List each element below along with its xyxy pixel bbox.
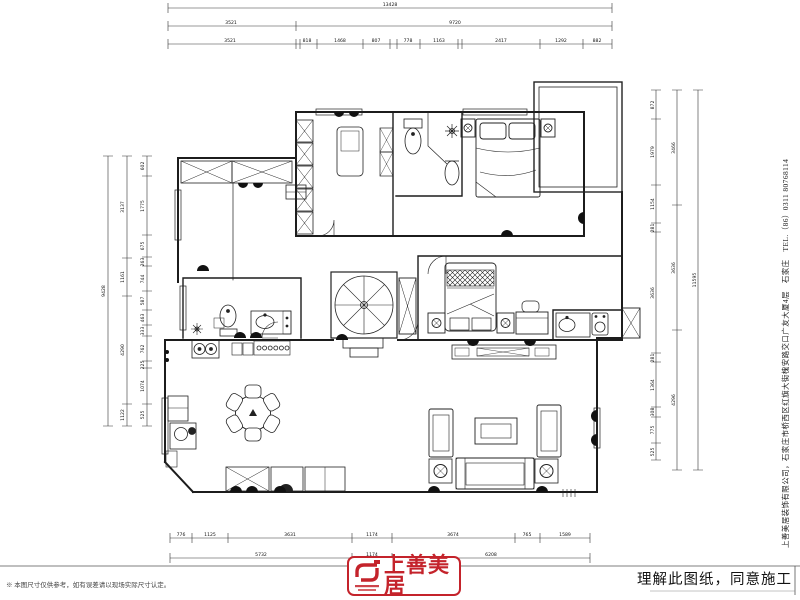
spiral-staircase xyxy=(331,272,397,357)
dim-label: 675 xyxy=(140,242,146,251)
sink-icon xyxy=(251,311,291,334)
terrace-wardrobes xyxy=(181,161,306,199)
brand-icon xyxy=(352,559,382,593)
master-bedroom xyxy=(461,119,555,197)
window xyxy=(463,109,527,115)
dim-label: 5732 xyxy=(255,552,267,558)
approval-note: 理解此图纸，同意施工 xyxy=(628,568,792,589)
dim-label: 882 xyxy=(593,38,602,44)
dim-label: 1292 xyxy=(555,38,567,44)
dim-label: 281 xyxy=(650,354,656,363)
disclaimer-note: ※ 本图尺寸仅供参考，如有误差请以现场实际尺寸认定。 xyxy=(6,579,170,589)
dim-label: 9720 xyxy=(449,20,461,26)
wardrobe-column xyxy=(296,120,393,234)
side-table xyxy=(535,459,558,483)
sofa xyxy=(456,458,534,489)
armchair xyxy=(429,409,453,457)
window xyxy=(162,398,168,454)
dimension-labels-right: 872 1979 1154 281 3636 281 1364 308 775 … xyxy=(650,101,698,457)
stove-icon xyxy=(192,340,219,358)
company-info-vertical: 上善美居装饰有限公司，石家庄市桥西区红旗大街槐安路交口广友大厦4层 石家庄 TE… xyxy=(780,159,791,548)
dim-label: 744 xyxy=(140,275,146,284)
dim-label: 1125 xyxy=(204,532,216,538)
dim-label: 333 xyxy=(140,327,146,336)
bathroom-right xyxy=(556,308,640,338)
small-table xyxy=(337,127,363,176)
dim-label: 263 xyxy=(140,258,146,267)
dim-label: 9428 xyxy=(101,285,107,297)
tv-cabinet xyxy=(452,345,556,359)
side-table xyxy=(429,459,452,483)
single-bed xyxy=(445,263,496,331)
dim-label: 281 xyxy=(650,224,656,233)
dim-label: 3636 xyxy=(671,262,677,274)
washing-machine-icon xyxy=(592,313,608,335)
dim-label: 762 xyxy=(140,345,146,354)
dim-label: 308 xyxy=(650,408,656,417)
dim-label: 6208 xyxy=(485,552,497,558)
nightstand xyxy=(461,119,475,137)
dim-label: 587 xyxy=(140,297,146,306)
floor-plan-canvas: 13428 3521 9720 3521 818 1468 807 778 11… xyxy=(0,0,800,600)
dim-label: 1163 xyxy=(433,38,445,44)
dining-area xyxy=(166,385,281,467)
dim-label: 1979 xyxy=(650,146,656,158)
kitchen xyxy=(192,340,290,358)
sink-cabinet xyxy=(166,396,196,467)
toilet-icon xyxy=(404,119,422,154)
dim-label: 3636 xyxy=(650,287,656,299)
dim-label: 3521 xyxy=(224,38,236,44)
dim-label: 3521 xyxy=(225,20,237,26)
double-bed xyxy=(476,119,540,197)
dim-label: 818 xyxy=(303,38,312,44)
nightstand xyxy=(497,313,514,333)
dim-label: 11595 xyxy=(692,273,698,288)
nightstand xyxy=(541,119,555,137)
dim-label: 1468 xyxy=(334,38,346,44)
dim-label: 1775 xyxy=(140,200,146,212)
bathroom-top xyxy=(404,112,459,185)
dim-label: 807 xyxy=(372,38,381,44)
dim-label: 463 xyxy=(140,314,146,323)
dim-label: 872 xyxy=(650,101,656,110)
logo-text: 上善美居 xyxy=(384,555,459,597)
dim-label: 1174 xyxy=(366,532,378,538)
dim-label: 525 xyxy=(650,448,656,457)
dim-label: 778 xyxy=(404,38,413,44)
bathroom-left xyxy=(191,305,291,336)
dim-label: 1161 xyxy=(120,271,126,283)
dim-label: 1122 xyxy=(120,409,126,421)
dim-label: 776 xyxy=(177,532,186,538)
dim-label: 765 xyxy=(523,532,532,538)
dim-label: 2417 xyxy=(495,38,507,44)
ac-bay xyxy=(622,308,640,338)
shower-icon xyxy=(191,323,203,335)
window xyxy=(180,286,186,330)
window xyxy=(175,190,181,240)
coffee-table xyxy=(475,418,517,444)
dim-label: 4290 xyxy=(120,344,126,356)
dim-label: 3466 xyxy=(671,142,677,154)
toilet-icon xyxy=(220,305,237,336)
dim-label: 225 xyxy=(140,361,146,370)
dim-label: 4296 xyxy=(671,394,677,406)
desk xyxy=(516,301,548,334)
interior-walls xyxy=(183,112,622,340)
sink-icon xyxy=(556,313,590,337)
dim-label: 1589 xyxy=(559,532,571,538)
armchair xyxy=(537,405,561,457)
floor-plan-page: 13428 3521 9720 3521 818 1468 807 778 11… xyxy=(0,0,800,600)
shower-icon xyxy=(445,124,459,138)
dim-label: 1154 xyxy=(650,198,656,210)
dimension-labels-bottom: 776 1125 3631 1174 3674 765 1589 5732 11… xyxy=(177,532,571,558)
living-room xyxy=(429,345,575,497)
logo: 上善美居 xyxy=(347,556,461,596)
dim-label: 602 xyxy=(140,162,146,171)
dim-label: 13428 xyxy=(383,2,398,8)
door-swing-markers xyxy=(165,112,597,492)
dim-label: 1074 xyxy=(140,380,146,392)
sink-icon xyxy=(445,161,459,185)
nightstand xyxy=(428,313,445,333)
dim-label: 1364 xyxy=(650,379,656,391)
vent-box xyxy=(254,341,290,355)
stair-column xyxy=(399,278,416,334)
dim-label: 3674 xyxy=(447,532,459,538)
dim-label: 775 xyxy=(650,426,656,435)
closets-bottom xyxy=(226,467,345,491)
dim-label: 525 xyxy=(140,411,146,420)
dim-label: 3137 xyxy=(120,201,126,213)
dim-label: 3631 xyxy=(284,532,296,538)
